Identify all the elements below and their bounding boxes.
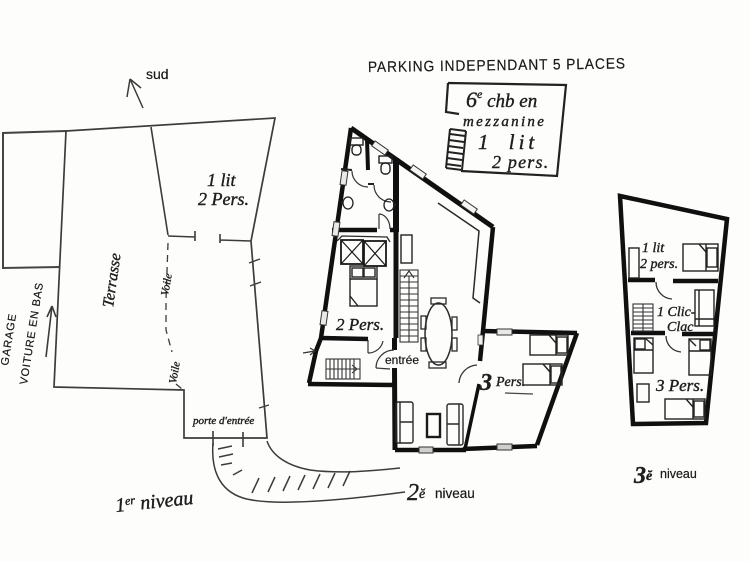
svg-text:GARAGE: GARAGE xyxy=(0,312,19,366)
svg-text:6e chb en: 6e chb en xyxy=(466,87,537,112)
svg-text:2 Pers.: 2 Pers. xyxy=(198,189,249,209)
svg-text:porte d'entrée: porte d'entrée xyxy=(192,415,254,427)
svg-text:2ĕ: 2ĕ xyxy=(407,480,426,506)
svg-text:3 Pers.: 3 Pers. xyxy=(655,376,704,395)
svg-text:Pers.: Pers. xyxy=(495,375,525,390)
svg-text:Voile: Voile xyxy=(167,361,183,385)
svg-text:2 Pers.: 2 Pers. xyxy=(336,315,384,334)
svg-text:1 Clic-: 1 Clic- xyxy=(657,305,696,320)
svg-text:VOITURE EN BAS: VOITURE EN BAS xyxy=(18,281,46,385)
svg-text:Voile: Voile xyxy=(159,273,175,297)
svg-text:niveau: niveau xyxy=(435,486,475,501)
svg-text:2 pers.: 2 pers. xyxy=(640,257,678,272)
svg-text:3: 3 xyxy=(479,370,492,396)
svg-text:niveau: niveau xyxy=(660,467,697,481)
svg-text:1 lit: 1 lit xyxy=(478,130,538,154)
svg-text:entrée: entrée xyxy=(385,353,419,367)
svg-text:PARKING INDEPENDANT 5 PLACES: PARKING INDEPENDANT 5 PLACES xyxy=(368,55,626,76)
svg-text:mezzanine: mezzanine xyxy=(463,114,546,130)
svg-text:2 pers.: 2 pers. xyxy=(492,152,549,172)
svg-text:1 lit: 1 lit xyxy=(642,241,665,256)
svg-text:Terrasse: Terrasse xyxy=(100,252,124,308)
svg-text:sud: sud xyxy=(146,66,169,82)
svg-text:1er niveau: 1er niveau xyxy=(114,487,194,517)
svg-text:Clac: Clac xyxy=(667,320,694,335)
svg-text:1 lit: 1 lit xyxy=(207,170,237,190)
svg-text:3ĕ: 3ĕ xyxy=(633,463,653,489)
